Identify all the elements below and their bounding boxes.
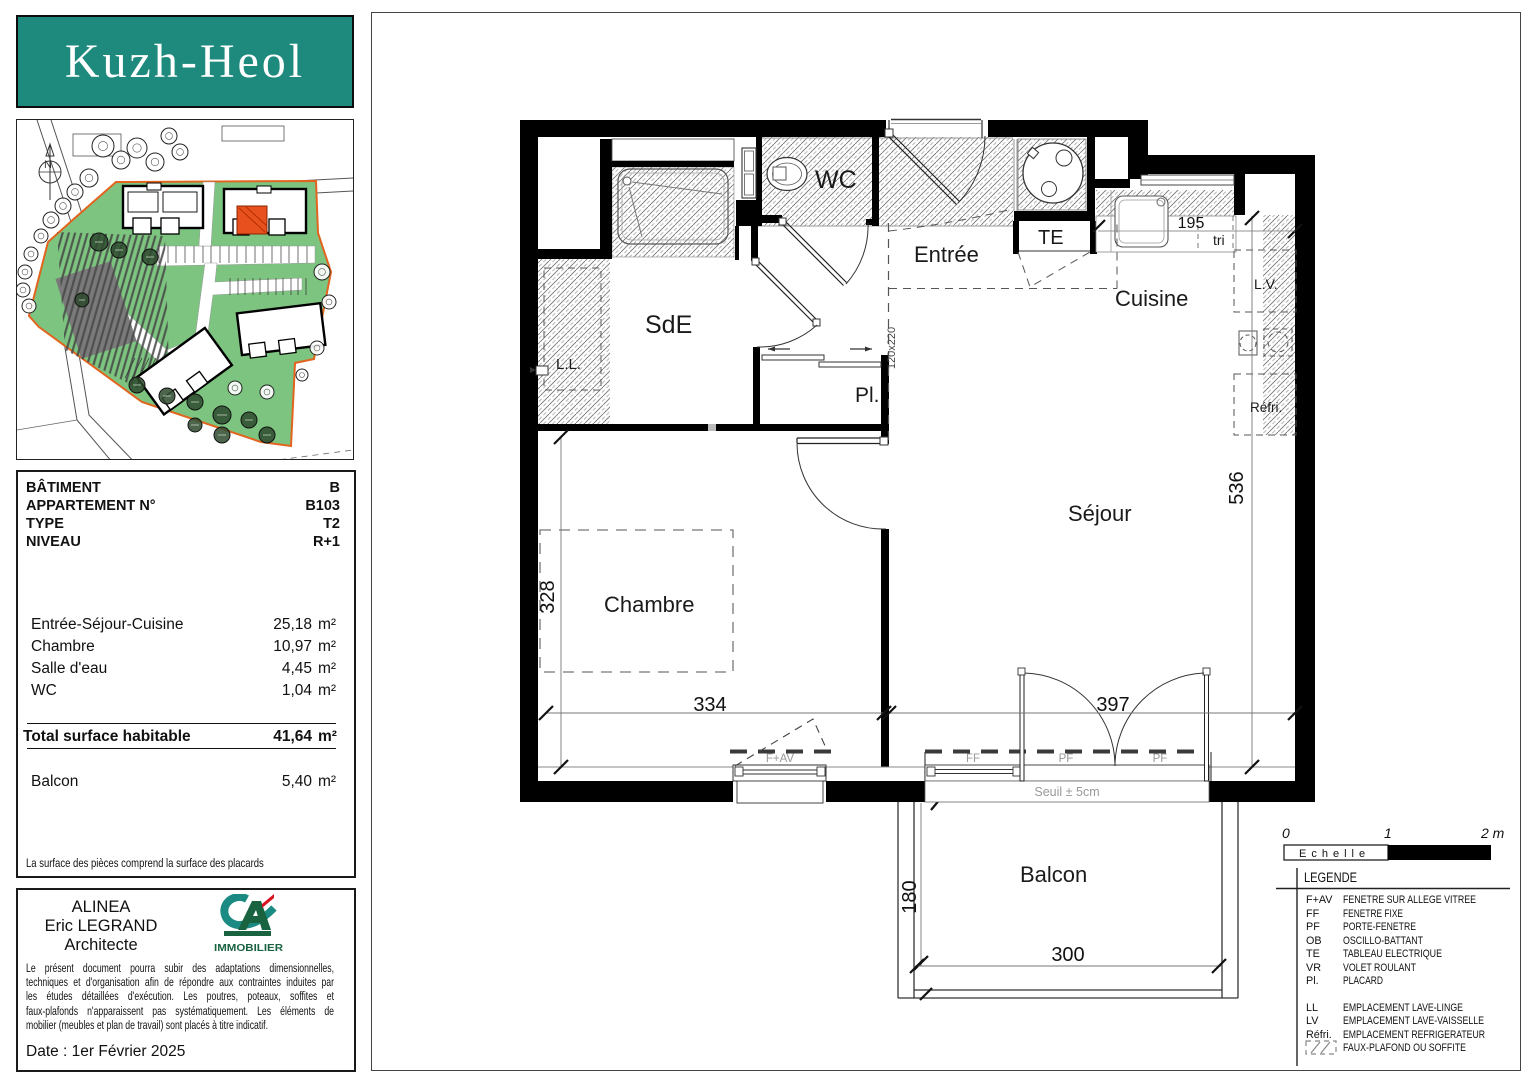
svg-text:FF: FF: [966, 753, 980, 765]
svg-text:PF: PF: [1306, 921, 1320, 933]
svg-text:PORTE-FENETRE: PORTE-FENETRE: [1343, 921, 1416, 933]
svg-text:Pl.: Pl.: [1306, 975, 1319, 987]
svg-text:334: 334: [693, 694, 726, 716]
svg-text:EMPLACEMENT LAVE-VAISSELLE: EMPLACEMENT LAVE-VAISSELLE: [1343, 1015, 1484, 1027]
svg-text:TE: TE: [1306, 948, 1320, 960]
svg-text:LL: LL: [1306, 1002, 1318, 1014]
svg-text:FAUX-PLAFOND OU SOFFITE: FAUX-PLAFOND OU SOFFITE: [1343, 1042, 1466, 1054]
svg-text:L.V.: L.V.: [1254, 276, 1278, 292]
svg-text:F+AV: F+AV: [1306, 894, 1333, 906]
svg-text:Echelle: Echelle: [1299, 848, 1370, 860]
svg-text:328: 328: [537, 580, 559, 613]
svg-text:L.L.: L.L.: [556, 356, 581, 373]
svg-text:Cuisine: Cuisine: [1115, 286, 1188, 311]
svg-text:2 m: 2 m: [1480, 825, 1505, 841]
svg-text:SdE: SdE: [645, 311, 692, 339]
svg-text:Pl.: Pl.: [855, 384, 880, 407]
svg-text:FENETRE SUR ALLEGE VITREE: FENETRE SUR ALLEGE VITREE: [1343, 894, 1476, 906]
svg-text:0: 0: [1282, 825, 1290, 841]
svg-text:180: 180: [899, 880, 921, 913]
svg-text:PF: PF: [1153, 753, 1168, 765]
svg-text:Réfri.: Réfri.: [1306, 1029, 1332, 1041]
svg-text:tri: tri: [1213, 232, 1225, 248]
svg-text:Réfri.: Réfri.: [1250, 400, 1282, 415]
svg-text:LEGENDE: LEGENDE: [1304, 870, 1357, 885]
svg-text:Seuil ± 5cm: Seuil ± 5cm: [1034, 785, 1099, 799]
svg-text:WC: WC: [815, 166, 857, 194]
svg-text:FENETRE FIXE: FENETRE FIXE: [1343, 908, 1403, 920]
svg-text:FF: FF: [1306, 908, 1320, 920]
svg-text:OB: OB: [1306, 935, 1322, 947]
svg-text:VOLET ROULANT: VOLET ROULANT: [1343, 962, 1416, 974]
svg-text:Entrée: Entrée: [914, 242, 979, 267]
svg-text:LV: LV: [1306, 1015, 1319, 1027]
svg-text:OSCILLO-BATTANT: OSCILLO-BATTANT: [1343, 935, 1423, 947]
svg-text:F+AV: F+AV: [766, 753, 795, 765]
svg-text:EMPLACEMENT LAVE-LINGE: EMPLACEMENT LAVE-LINGE: [1343, 1002, 1463, 1014]
svg-text:PF: PF: [1059, 753, 1074, 765]
svg-text:195: 195: [1178, 215, 1205, 232]
svg-text:VR: VR: [1306, 962, 1321, 974]
svg-text:397: 397: [1096, 694, 1129, 716]
svg-text:TE: TE: [1038, 227, 1064, 249]
svg-text:TABLEAU ELECTRIQUE: TABLEAU ELECTRIQUE: [1343, 948, 1442, 960]
svg-text:Séjour: Séjour: [1068, 501, 1132, 526]
svg-text:EMPLACEMENT REFRIGERATEUR: EMPLACEMENT REFRIGERATEUR: [1343, 1029, 1485, 1041]
svg-text:PLACARD: PLACARD: [1343, 975, 1383, 987]
svg-text:120x220: 120x220: [886, 327, 898, 369]
svg-text:300: 300: [1051, 944, 1084, 966]
svg-text:1: 1: [1384, 825, 1392, 841]
svg-text:536: 536: [1226, 471, 1248, 504]
svg-text:Chambre: Chambre: [604, 592, 694, 617]
svg-text:Balcon: Balcon: [1020, 862, 1087, 887]
